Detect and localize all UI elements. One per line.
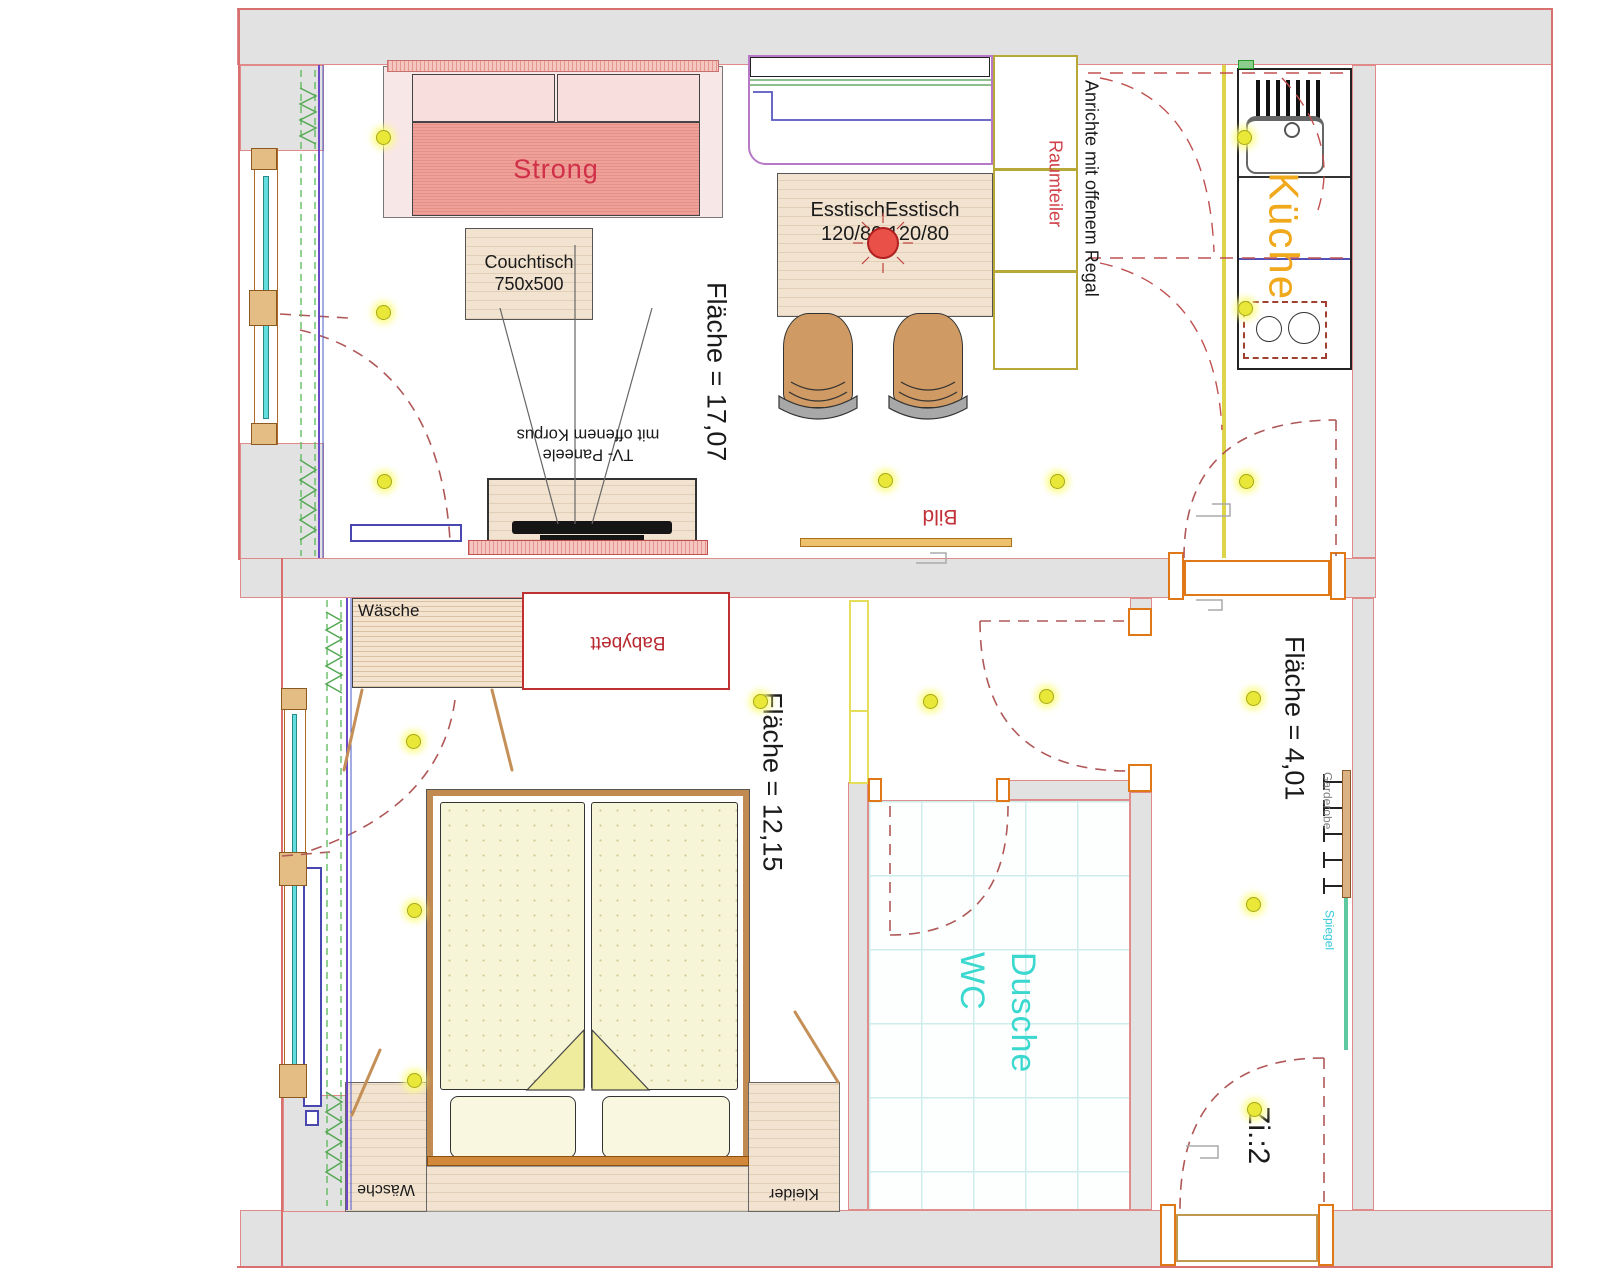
sofa-label: Strong — [513, 153, 599, 185]
radiator-living — [350, 524, 462, 542]
room-divider-label: Raumteiler — [1044, 140, 1066, 227]
bathroom-label-line2: WC — [946, 952, 997, 1073]
chair-left — [783, 313, 853, 408]
bathroom-label: Dusche WC — [946, 952, 1048, 1073]
bed-foot-board — [408, 1166, 768, 1212]
vestibule-cabinet-divider — [849, 710, 869, 712]
mirror-board — [1344, 898, 1348, 1050]
boundary-left-lower — [281, 558, 283, 1268]
boundary-bottom — [237, 1266, 1553, 1268]
wall-corridor-right — [1352, 598, 1374, 1210]
wall-corridor-left-b — [1130, 792, 1152, 1210]
window-living-sill-top — [251, 148, 277, 170]
boundary-left-upper — [238, 8, 240, 560]
shelf-divider-2 — [995, 270, 1076, 273]
wall-bottom-b — [1332, 1210, 1553, 1268]
vestibule-cabinet — [849, 600, 869, 784]
wardrobe-bottom-label: Wäsche — [347, 1180, 425, 1199]
chair-right — [893, 313, 963, 408]
pillow-left — [450, 1096, 576, 1158]
ceiling-light-icon — [1239, 474, 1254, 489]
coat-rack-label: Garderobe — [1320, 772, 1334, 829]
sofa-cushion-left — [412, 74, 555, 122]
kitchen-label: Küche — [1258, 172, 1308, 301]
picture-strip — [800, 538, 1012, 547]
door-leaf-entry — [1176, 1214, 1318, 1262]
ceiling-light-icon — [377, 474, 392, 489]
baby-bed-label: Babybett — [548, 630, 708, 653]
sofa-back-strip — [387, 60, 719, 72]
door-swing-vestibule — [980, 621, 1128, 771]
ceiling-light-icon — [407, 903, 422, 918]
wall-left-upper-a — [240, 65, 324, 151]
tv-wall-strip — [468, 540, 708, 555]
door-frame-vestibule-bottom — [1128, 764, 1152, 792]
area-living-label: Fläche = 17,07 — [700, 282, 732, 461]
closet-label: Kleider — [750, 1184, 838, 1203]
boundary-right — [1551, 8, 1553, 1268]
faucet-icon — [1284, 122, 1300, 138]
burner-small-icon — [1256, 316, 1282, 342]
picture-label: Bild — [902, 504, 978, 529]
door-swing-living — [1184, 420, 1336, 558]
ceiling-light-icon — [406, 734, 421, 749]
mirror-label: Spiegel — [1322, 910, 1336, 950]
ceiling-light-icon — [376, 305, 391, 320]
bathroom-label-line1: Dusche — [997, 952, 1048, 1073]
ceiling-light-icon — [923, 694, 938, 709]
ceiling-light-icon — [1246, 691, 1261, 706]
door-leaf-living — [1184, 560, 1330, 596]
window-bedroom-handle-a — [279, 852, 307, 886]
mattress-left — [440, 802, 585, 1090]
wall-bottom-a — [240, 1210, 1162, 1268]
dining-table-name: EsstischEsstisch — [811, 198, 960, 222]
ceiling-light-icon — [1039, 689, 1054, 704]
ceiling-light-icon — [407, 1073, 422, 1088]
wardrobe-top-label: Wäsche — [358, 601, 419, 621]
coffee-table: Couchtisch 750x500 — [465, 228, 593, 320]
pillow-right — [602, 1096, 730, 1158]
ceiling-light-icon — [1238, 301, 1253, 316]
tv-label: TV- Paneele mit offenem Korpus — [462, 424, 714, 464]
sideboard-label: Anrichte mit offenem Regal — [1080, 80, 1102, 297]
ceiling-light-icon — [1246, 897, 1261, 912]
door-frame-bath-right — [996, 778, 1010, 802]
door-frame-bath-left — [868, 778, 882, 802]
door-frame-entry-left — [1160, 1204, 1176, 1266]
wall-left-upper-b — [240, 443, 324, 560]
corner-bench-backrest — [750, 57, 990, 77]
mattress-right — [591, 802, 738, 1090]
wall-middle-b — [1344, 558, 1376, 598]
coffee-table-size: 750x500 — [494, 274, 563, 296]
tv-label-line2: mit offenem Korpus — [462, 424, 714, 444]
area-bedroom-label: Fläche = 12,15 — [756, 692, 788, 871]
window-bedroom-glass — [292, 714, 297, 1071]
tv-label-line1: TV- Paneele — [462, 444, 714, 464]
window-bedroom-sill-top — [281, 688, 307, 710]
door-frame-entry-right — [1318, 1204, 1334, 1266]
window-bedroom-handle-b — [279, 1064, 307, 1098]
burner-large-icon — [1288, 312, 1320, 344]
tv-screen-base — [540, 535, 644, 540]
ceiling-light-icon — [1247, 1102, 1262, 1117]
floor-plan: Strong Couchtisch 750x500 TV- Paneele mi… — [0, 0, 1600, 1280]
door-frame-vestibule-top — [1128, 608, 1152, 636]
coffee-table-name: Couchtisch — [484, 252, 573, 274]
ceiling-light-icon — [753, 694, 768, 709]
interior-wall-lines — [319, 65, 351, 1210]
ceiling-light-icon — [1237, 130, 1252, 145]
kitchen-vent-mark — [1238, 60, 1254, 69]
wall-bath-left — [848, 782, 868, 1210]
pendant-lamp-icon — [867, 227, 899, 259]
kitchen-counter-edge — [1222, 65, 1226, 558]
wall-bath-top-b — [1008, 780, 1130, 800]
area-hallway-label: Fläche = 4,01 — [1278, 636, 1310, 800]
coat-rack-board — [1342, 770, 1351, 898]
window-living-sill-bottom — [251, 423, 277, 445]
door-frame-living-right — [1330, 552, 1346, 600]
tv-screen — [512, 521, 672, 534]
bed-base-bar — [427, 1156, 749, 1166]
ceiling-light-icon — [376, 130, 391, 145]
ceiling-light-icon — [878, 473, 893, 488]
boundary-top — [237, 8, 1553, 10]
radiator-bedroom-valve — [305, 1110, 319, 1126]
ceiling-light-icon — [1050, 474, 1065, 489]
sofa-seat: Strong — [412, 122, 700, 216]
wall-kitchen-right — [1352, 65, 1376, 558]
window-living-handle — [249, 290, 277, 326]
sofa-cushion-right — [557, 74, 700, 122]
door-frame-living-left — [1168, 552, 1184, 600]
